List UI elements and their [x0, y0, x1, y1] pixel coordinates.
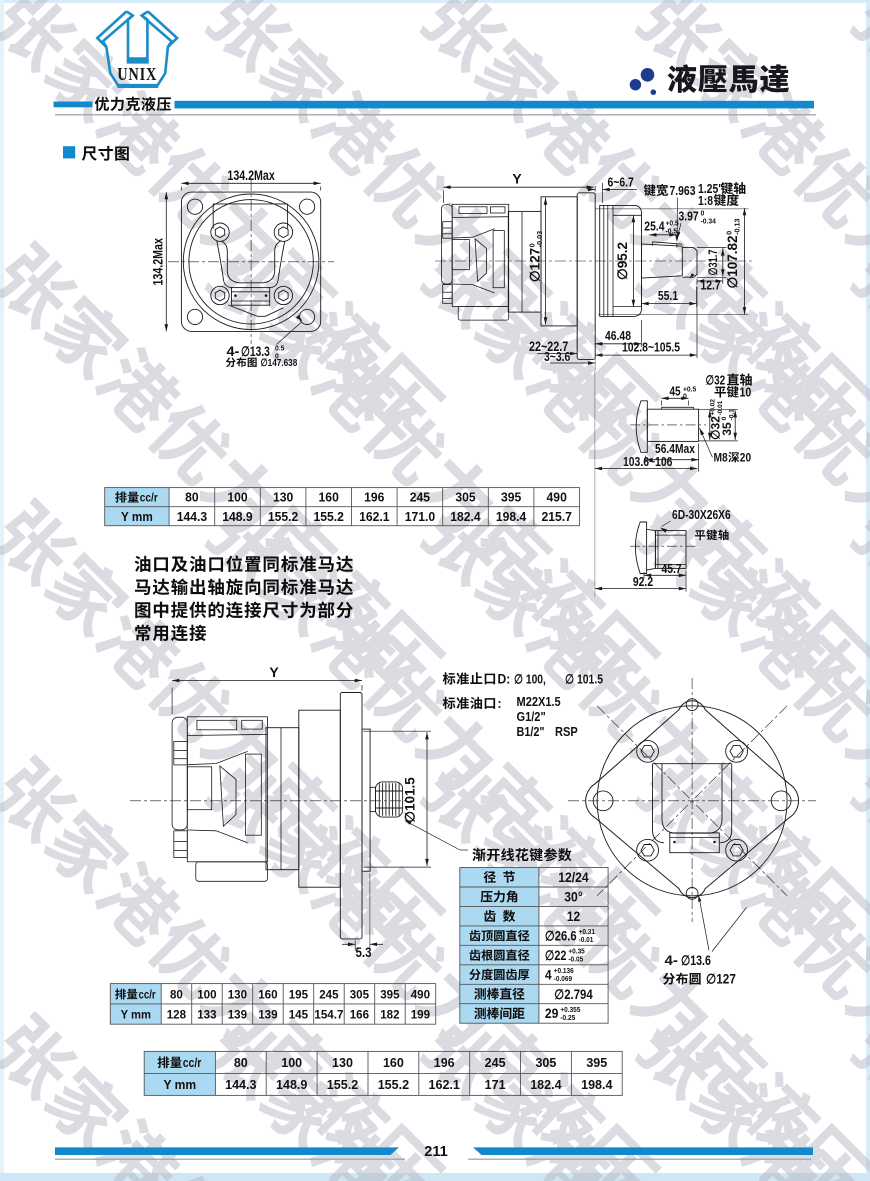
svg-text:92.2: 92.2	[633, 574, 653, 589]
svg-text:M22X1.5: M22X1.5	[517, 694, 561, 709]
svg-text:245: 245	[410, 490, 430, 505]
svg-text:144.3: 144.3	[177, 509, 207, 524]
svg-text:∅ 100,: ∅ 100,	[514, 672, 546, 687]
svg-text:12.7: 12.7	[701, 278, 721, 293]
svg-text:144.3: 144.3	[225, 1077, 256, 1092]
svg-text:∅127: ∅127	[706, 972, 736, 987]
svg-text:12/24: 12/24	[558, 870, 589, 885]
svg-text:Y mm: Y mm	[121, 509, 153, 524]
svg-text:35: 35	[720, 422, 734, 436]
svg-text:305: 305	[535, 1055, 556, 1070]
svg-text:171.0: 171.0	[405, 509, 435, 524]
svg-text:130: 130	[332, 1055, 353, 1070]
svg-text:-0.1: -0.1	[729, 409, 736, 421]
svg-text:395: 395	[380, 987, 400, 1001]
svg-text:80: 80	[234, 1055, 248, 1070]
svg-text:3.97: 3.97	[679, 209, 699, 224]
svg-text:102.8~105.5: 102.8~105.5	[622, 339, 680, 354]
svg-text:195: 195	[289, 987, 309, 1001]
svg-text:171: 171	[485, 1077, 506, 1092]
svg-text:130: 130	[228, 987, 248, 1001]
svg-text:139: 139	[228, 1008, 248, 1022]
svg-text:134.2Max: 134.2Max	[151, 238, 166, 286]
svg-text:196: 196	[364, 490, 384, 505]
svg-text:128: 128	[167, 1008, 187, 1022]
svg-text:155.2: 155.2	[327, 1077, 358, 1092]
svg-text:0: 0	[721, 416, 728, 420]
svg-text:∅32: ∅32	[706, 373, 726, 388]
svg-text:∅13.6: ∅13.6	[681, 953, 711, 968]
svg-text:45: 45	[670, 384, 681, 398]
svg-text:4-: 4-	[227, 344, 240, 359]
svg-text:7.963: 7.963	[670, 183, 696, 198]
svg-text:29: 29	[545, 1006, 559, 1021]
svg-text:Y mm: Y mm	[121, 1008, 151, 1022]
svg-text:155.2: 155.2	[268, 509, 298, 524]
svg-text:45.7: 45.7	[662, 561, 682, 576]
svg-text:D:: D:	[498, 672, 511, 687]
svg-text:∅ 101.5: ∅ 101.5	[565, 672, 603, 687]
svg-text:80: 80	[185, 490, 199, 505]
svg-text:182.4: 182.4	[530, 1077, 562, 1092]
svg-text:211: 211	[424, 1144, 447, 1160]
svg-text:4-: 4-	[665, 953, 678, 968]
svg-text:25.4: 25.4	[644, 219, 665, 234]
svg-text:cc/r: cc/r	[183, 1056, 202, 1070]
svg-text:∅26.6: ∅26.6	[545, 928, 577, 943]
svg-text:145: 145	[289, 1008, 309, 1022]
svg-text:103.6~106: 103.6~106	[623, 454, 672, 469]
svg-text:198.4: 198.4	[581, 1077, 613, 1092]
svg-text:139: 139	[258, 1008, 278, 1022]
svg-text:B1/2": B1/2"	[517, 724, 545, 739]
svg-text:490: 490	[411, 987, 431, 1001]
svg-text:∅31.7: ∅31.7	[706, 249, 720, 275]
svg-text:155.2: 155.2	[314, 509, 344, 524]
svg-text:162.1: 162.1	[359, 509, 389, 524]
svg-text:1:8: 1:8	[698, 193, 713, 208]
svg-text:5.3: 5.3	[356, 945, 372, 960]
svg-text:4: 4	[545, 967, 552, 982]
svg-text:182.4: 182.4	[450, 509, 481, 524]
svg-text:30°: 30°	[564, 890, 582, 905]
svg-text:395: 395	[586, 1055, 607, 1070]
svg-text:305: 305	[350, 987, 370, 1001]
svg-text:100: 100	[281, 1055, 302, 1070]
svg-text:-0.34: -0.34	[701, 217, 717, 226]
svg-text:∅2.794: ∅2.794	[554, 987, 593, 1002]
svg-text:10: 10	[740, 386, 752, 400]
svg-text:∅127: ∅127	[528, 248, 543, 282]
svg-text:0: 0	[683, 392, 687, 401]
svg-text:∅95.2: ∅95.2	[615, 242, 630, 280]
svg-text:80: 80	[170, 987, 183, 1001]
svg-text:134.2Max: 134.2Max	[227, 168, 275, 183]
svg-text:-0.01: -0.01	[579, 935, 594, 944]
svg-text:155.2: 155.2	[378, 1077, 409, 1092]
svg-text::: :	[498, 696, 502, 711]
svg-text:Y mm: Y mm	[163, 1077, 196, 1092]
svg-text:160: 160	[383, 1055, 404, 1070]
svg-text:Y: Y	[512, 171, 522, 187]
svg-text:245: 245	[485, 1055, 506, 1070]
svg-text:Y: Y	[269, 664, 279, 680]
svg-text:6D-30X26X6: 6D-30X26X6	[672, 508, 731, 522]
svg-text:∅107.82: ∅107.82	[725, 235, 740, 288]
svg-text:RSP: RSP	[555, 724, 578, 739]
svg-text:166: 166	[350, 1008, 370, 1022]
svg-text:+0.02: +0.02	[709, 399, 716, 416]
svg-text:G1/2": G1/2"	[517, 709, 546, 724]
svg-text:3~3.6: 3~3.6	[544, 349, 570, 364]
svg-text:154.7: 154.7	[314, 1008, 343, 1022]
svg-text:UNIX: UNIX	[117, 64, 157, 84]
svg-text:55.1: 55.1	[658, 288, 678, 303]
svg-text:100: 100	[197, 987, 217, 1001]
svg-text:∅22: ∅22	[545, 948, 567, 963]
svg-text:∅147.638: ∅147.638	[261, 357, 298, 369]
svg-text:245: 245	[319, 987, 339, 1001]
svg-text:305: 305	[455, 490, 475, 505]
svg-text:148.9: 148.9	[222, 509, 252, 524]
svg-text:6~6.7: 6~6.7	[608, 174, 634, 189]
svg-text:395: 395	[501, 490, 521, 505]
svg-text:160: 160	[319, 490, 339, 505]
svg-text:160: 160	[258, 987, 278, 1001]
svg-text:162.1: 162.1	[429, 1077, 460, 1092]
svg-text:-0.25: -0.25	[560, 1013, 575, 1022]
svg-text:cc/r: cc/r	[140, 491, 158, 505]
svg-text:198.4: 198.4	[496, 509, 527, 524]
svg-text:-0.05: -0.05	[568, 954, 583, 963]
svg-text:-0.03: -0.03	[535, 231, 544, 247]
svg-text:215.7: 215.7	[542, 509, 572, 524]
svg-text:cc/r: cc/r	[139, 989, 157, 1001]
svg-text:182: 182	[380, 1008, 400, 1022]
svg-text:133: 133	[197, 1008, 217, 1022]
svg-text:490: 490	[547, 490, 567, 505]
svg-text:-0.069: -0.069	[554, 974, 572, 983]
svg-text:196: 196	[434, 1055, 455, 1070]
svg-text:20: 20	[740, 451, 752, 465]
svg-text:-0.01: -0.01	[717, 400, 724, 415]
svg-text:130: 130	[273, 490, 293, 505]
svg-text:148.9: 148.9	[276, 1077, 307, 1092]
svg-text:M8: M8	[714, 451, 728, 465]
svg-text:199: 199	[411, 1008, 431, 1022]
svg-text:12: 12	[567, 909, 581, 924]
svg-text:-0.13: -0.13	[732, 219, 741, 235]
svg-text:100: 100	[227, 490, 247, 505]
svg-text:∅101.5: ∅101.5	[403, 777, 418, 823]
